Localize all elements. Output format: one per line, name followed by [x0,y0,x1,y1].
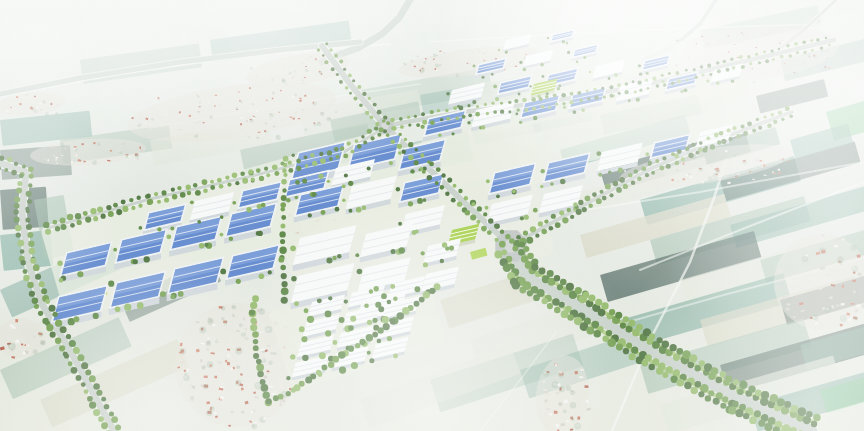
render-canvas [0,0,864,431]
aerial-masterplan-render [0,0,864,431]
atmospheric-haze [0,0,864,431]
